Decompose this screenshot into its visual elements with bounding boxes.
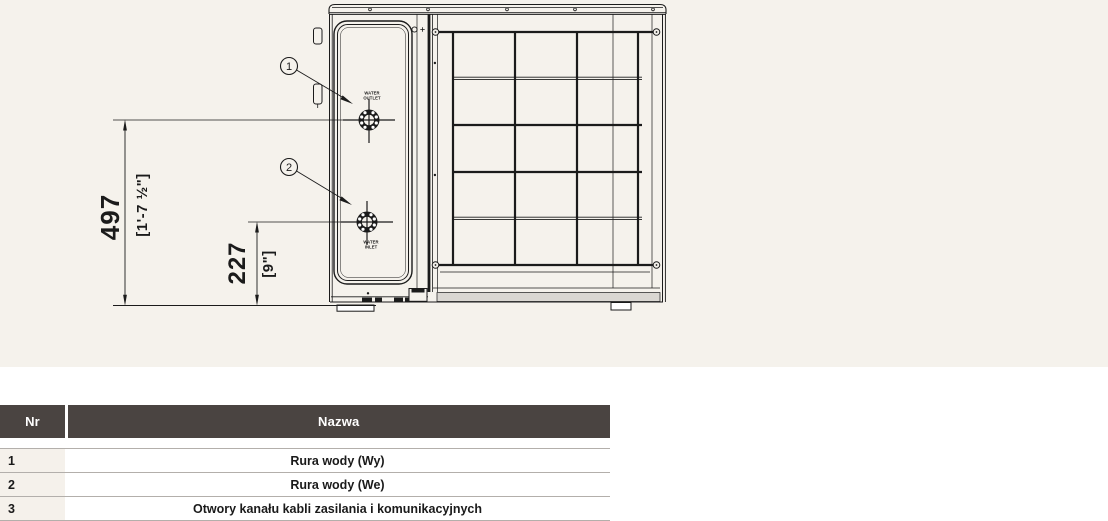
callout-2: 2 [281,159,353,206]
dim-arrow-up-icon [255,222,259,233]
right-foot [611,303,631,311]
top-screw-icons [369,8,655,11]
dimension-497-mm: 497 [95,194,125,240]
legend-table-body: 1 Rura wody (Wy) 2 Rura wody (We) 3 Otwo… [0,448,610,521]
header-nazwa: Nazwa [68,405,611,438]
leader-arrow-icon [340,95,353,104]
fan-grille [432,14,660,288]
divider-post [417,14,438,297]
dimension-lower-height: 227 [9"] [224,222,341,306]
technical-drawing-area: WATER OUTLET WATER INLET 1 2 [0,0,1108,367]
water-outlet-label-line2: OUTLET [363,96,381,101]
screw-marker-icon [412,27,425,32]
table-row: 3 Otwory kanału kabli zasilania i komuni… [0,497,610,521]
callout-2-number: 2 [286,162,292,174]
dim-arrow-down-icon [255,295,259,306]
page: WATER OUTLET WATER INLET 1 2 [0,0,1108,521]
row-nazwa: Otwory kanału kabli zasilania i komunika… [65,497,610,520]
water-inlet-connector [341,201,393,245]
unit-base [331,288,660,311]
table-row: 2 Rura wody (We) [0,473,610,497]
dimension-227-mm: 227 [224,241,251,284]
heat-pump-rear-view-drawing: WATER OUTLET WATER INLET 1 2 [0,0,1108,367]
unit-outline [329,5,666,303]
callout-1: 1 [281,58,354,105]
water-outlet-connector [343,99,395,143]
row-nazwa: Rura wody (Wy) [65,449,610,472]
dimension-497-imperial: [1'-7 ½"] [134,173,151,237]
dimension-227-imperial: [9"] [260,250,277,277]
mounting-brackets [314,28,323,108]
cable-conduit-tab [409,289,427,302]
header-nr: Nr [0,405,65,438]
water-inlet-label-line2: INLET [365,245,378,250]
legend-table: Nr Nazwa 1 Rura wody (Wy) 2 Rura wody (W… [0,405,610,521]
callout-1-number: 1 [286,61,292,73]
dim-arrow-down-icon [123,295,127,306]
table-row: 1 Rura wody (Wy) [0,449,610,473]
row-nr: 3 [0,497,65,520]
legend-table-header: Nr Nazwa [0,405,610,438]
row-nazwa: Rura wody (We) [65,473,610,496]
dim-arrow-up-icon [123,120,127,131]
leader-arrow-icon [339,196,352,205]
grille-fastener-icons [432,29,660,269]
row-nr: 2 [0,473,65,496]
row-nr: 1 [0,449,65,472]
